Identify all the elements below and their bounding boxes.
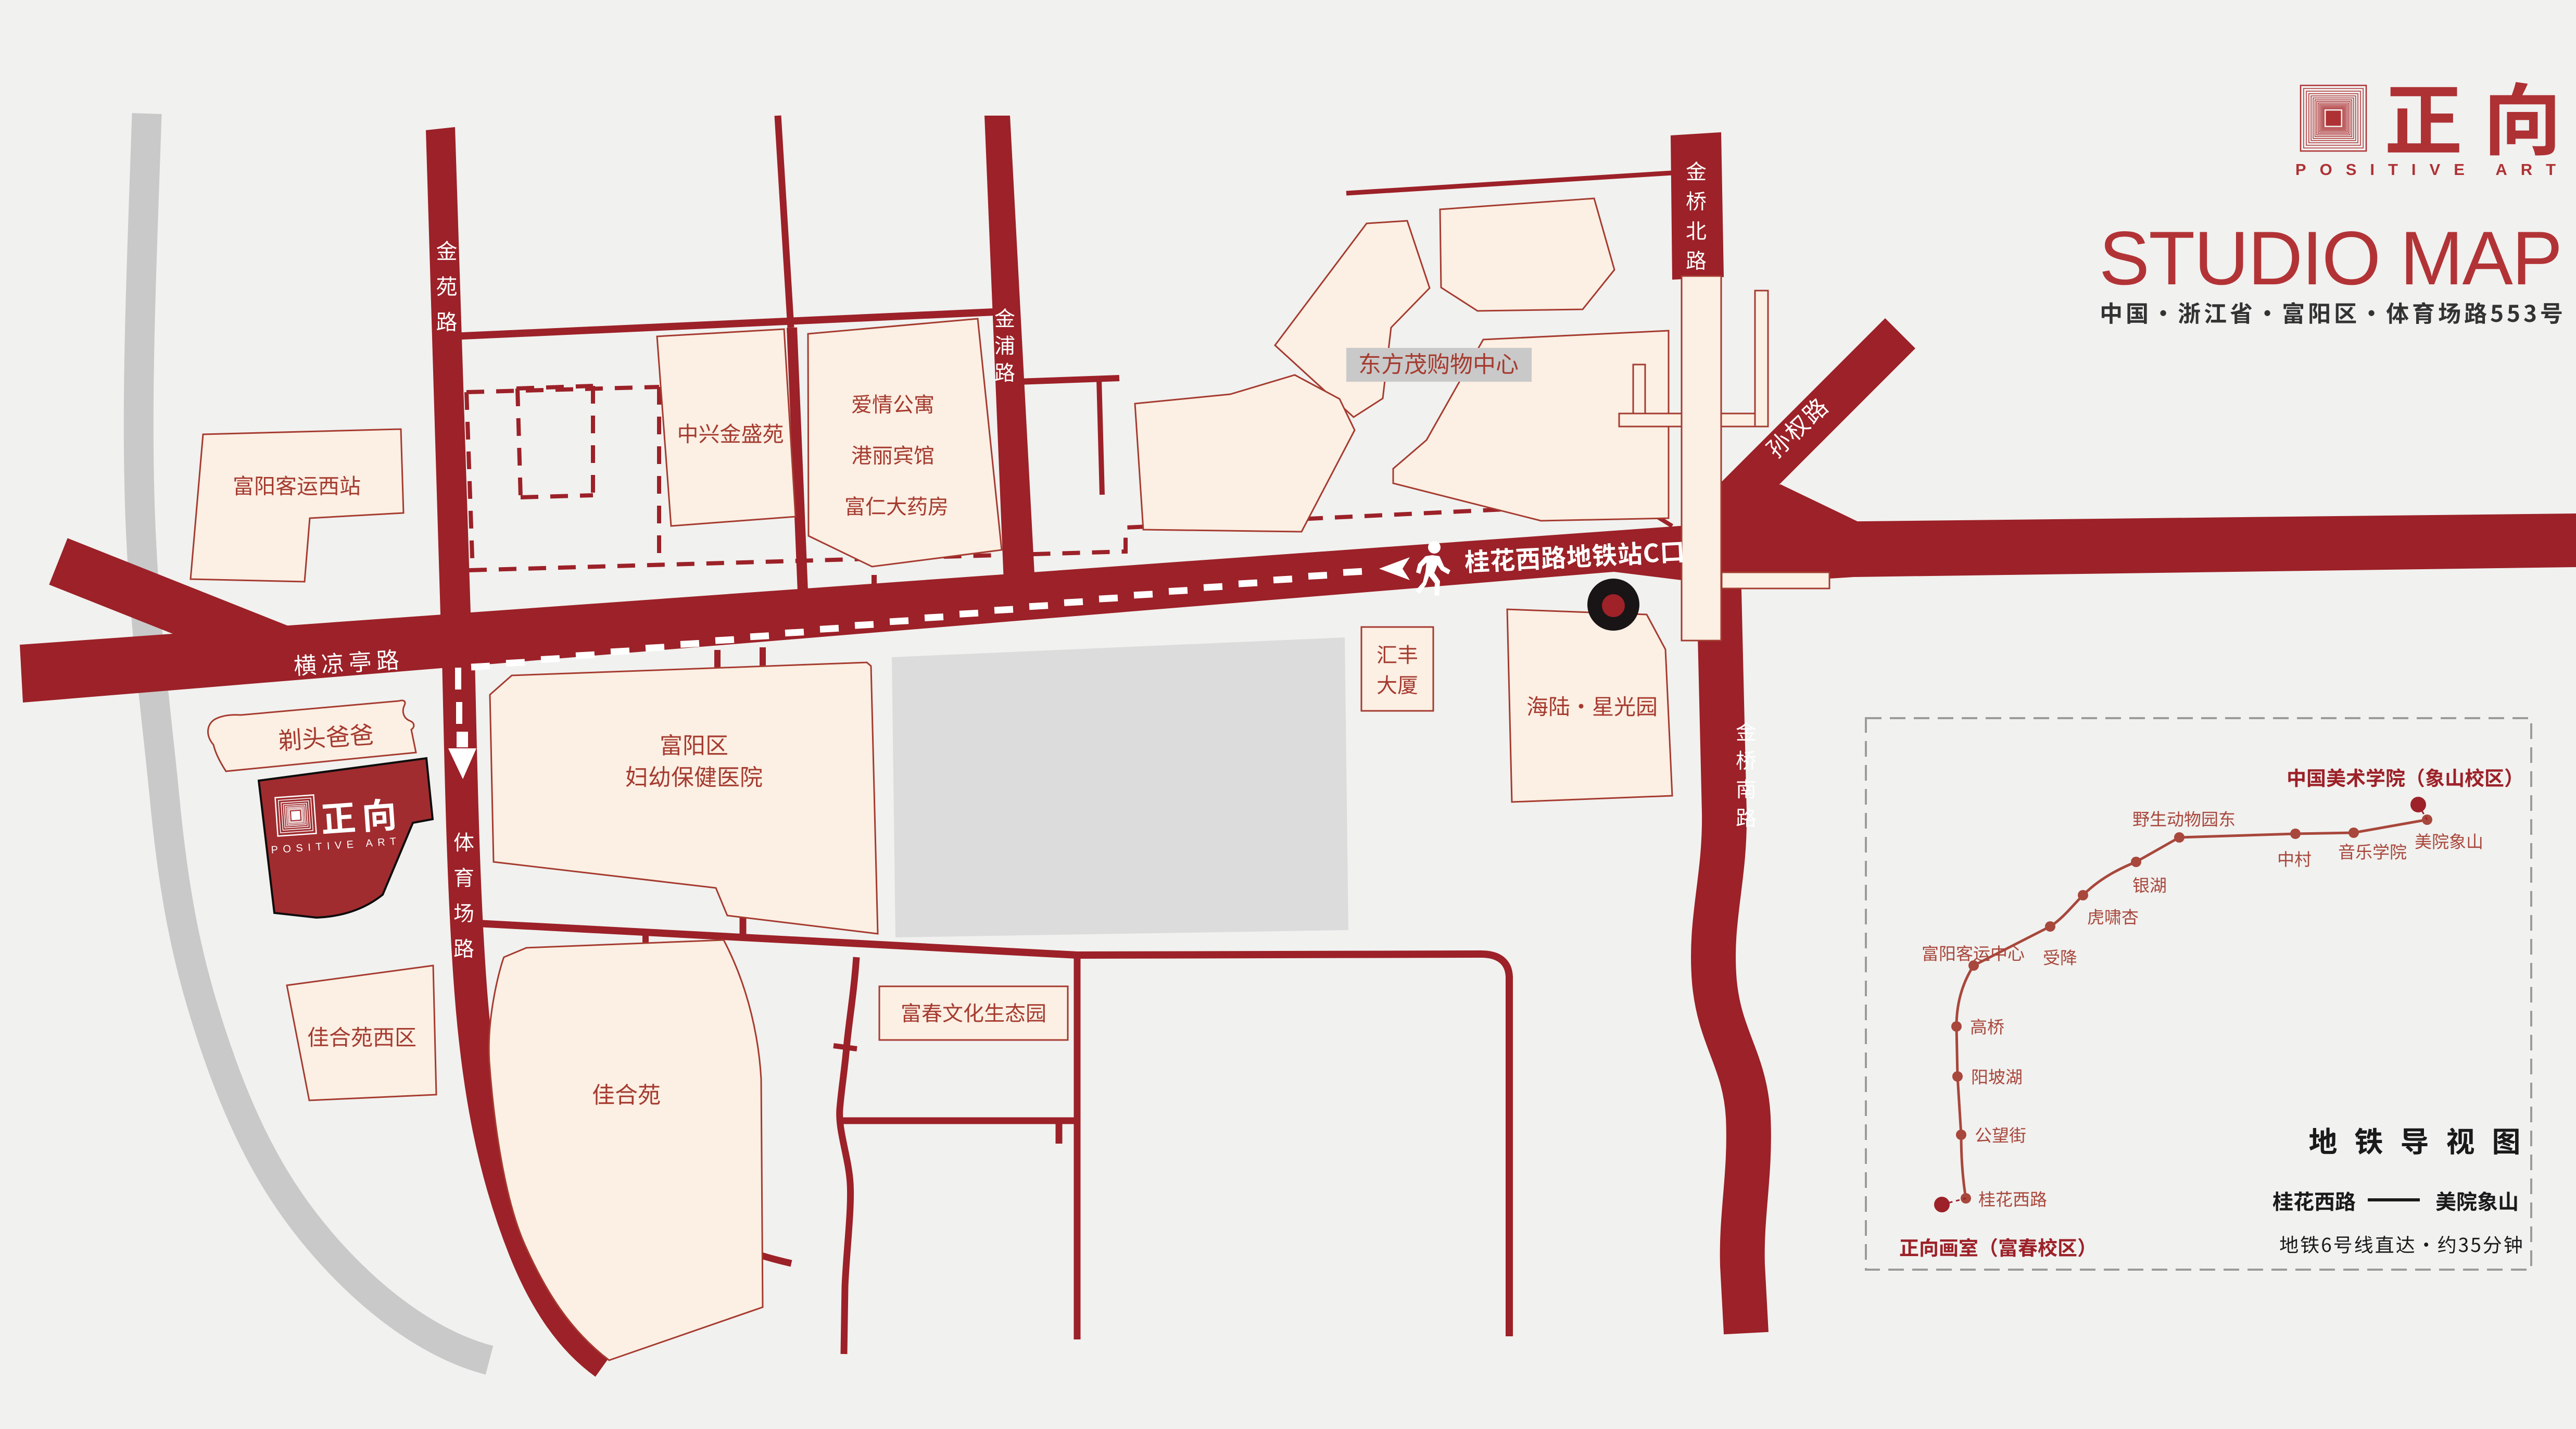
svg-text:STUDIO MAP: STUDIO MAP bbox=[2099, 216, 2562, 300]
svg-text:POSITIVE ART: POSITIVE ART bbox=[2295, 160, 2569, 179]
